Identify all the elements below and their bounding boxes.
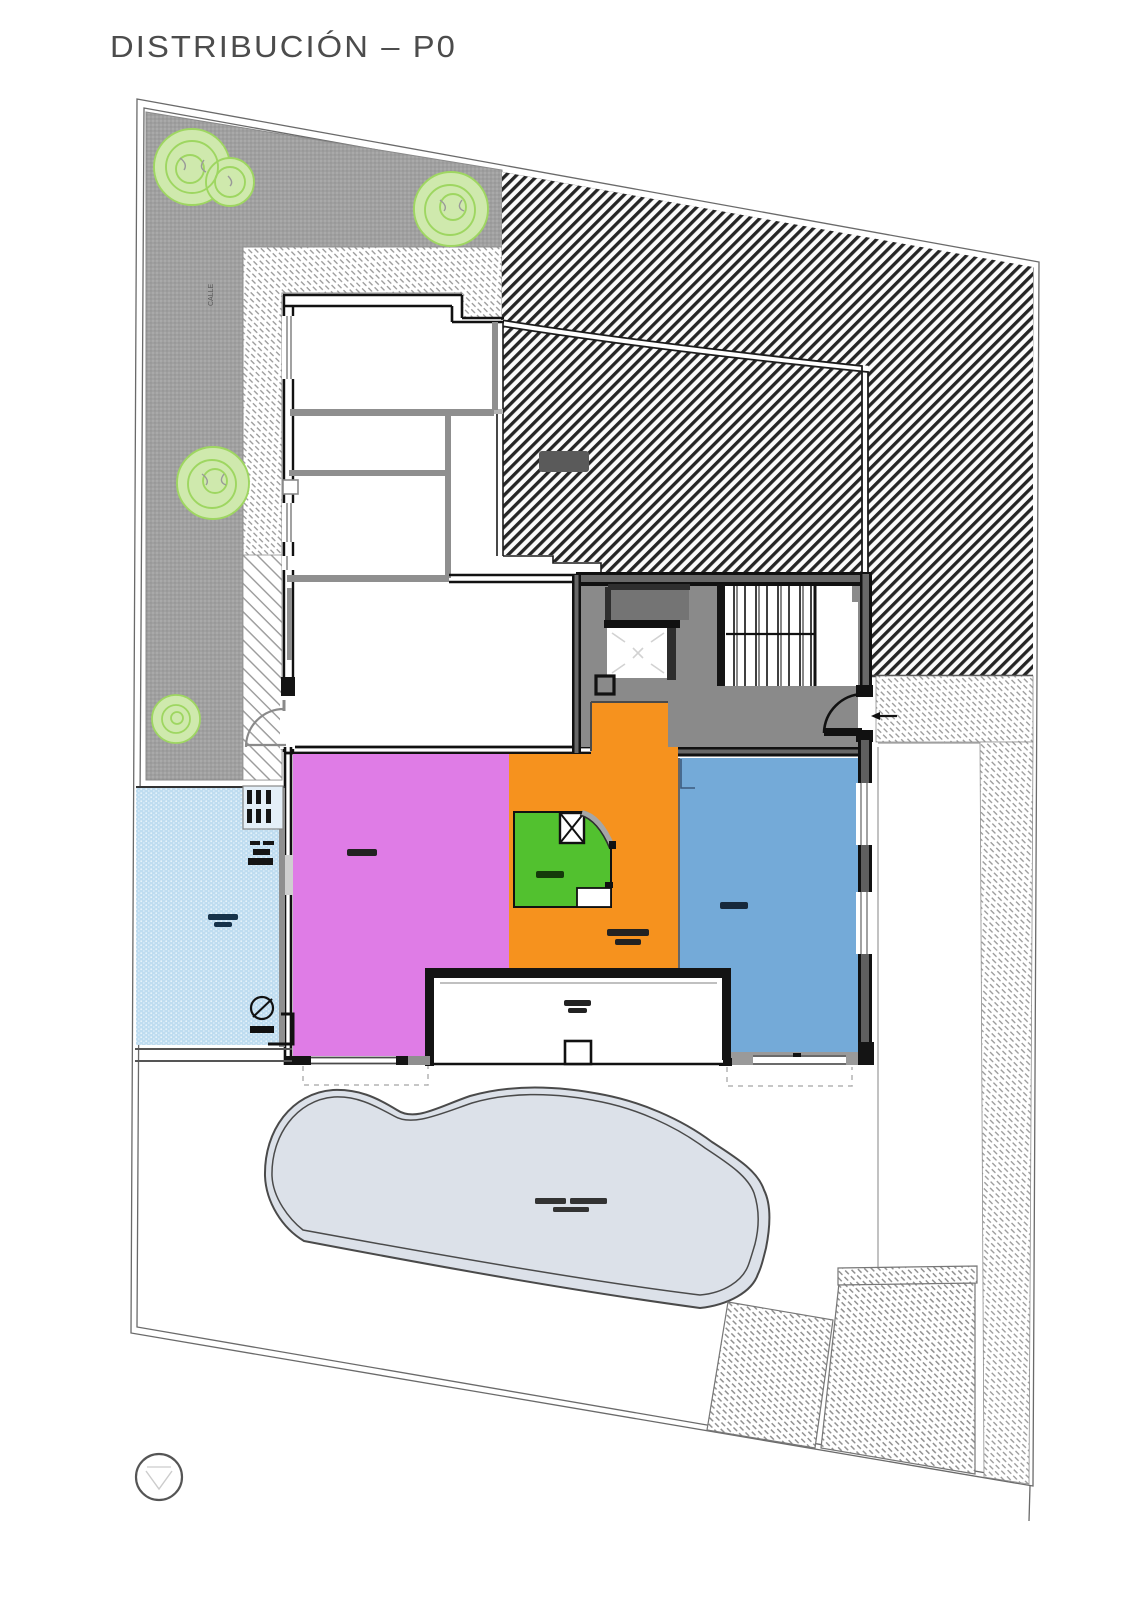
svg-text:DISTRIBUCIÓN – P0: DISTRIBUCIÓN – P0 bbox=[110, 29, 457, 64]
svg-text:CALLE: CALLE bbox=[208, 283, 215, 306]
